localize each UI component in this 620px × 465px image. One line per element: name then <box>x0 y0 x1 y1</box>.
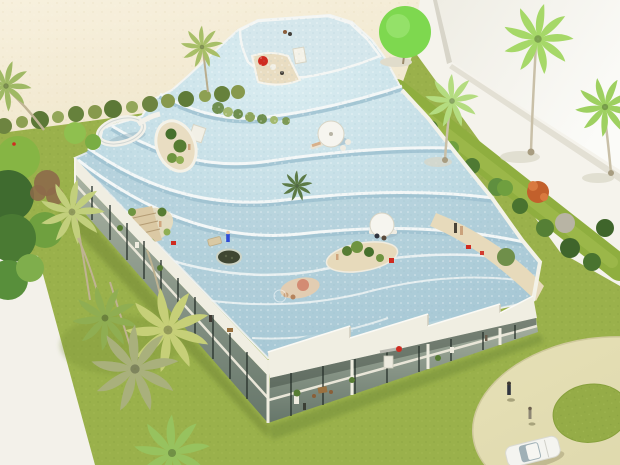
interior-figure <box>209 315 212 322</box>
terrace-tree <box>497 248 515 266</box>
rendered-scene <box>0 0 620 465</box>
red-chair <box>171 241 176 245</box>
round-pool <box>217 250 241 265</box>
orange-flower-bush <box>527 181 549 203</box>
red-flowers <box>396 346 402 352</box>
figure <box>159 221 162 227</box>
grey-bush <box>555 213 575 233</box>
red-flowers <box>12 142 16 146</box>
figure <box>460 226 463 235</box>
seated-figure <box>382 236 387 241</box>
standing-blue-figure <box>226 231 230 242</box>
interior-figure <box>303 403 306 410</box>
pedestrian <box>529 410 532 419</box>
swimmer <box>291 295 296 300</box>
figure <box>454 223 457 233</box>
red-chair <box>466 245 471 249</box>
seated-figure <box>375 234 380 239</box>
figure <box>336 254 339 260</box>
red-chair <box>389 258 394 263</box>
scene-canvas <box>0 0 620 465</box>
pedestrian <box>507 385 511 395</box>
red-chair <box>480 251 484 255</box>
interior-figure <box>485 335 488 341</box>
white-parasol <box>370 213 394 237</box>
courtyard-figure <box>188 144 191 150</box>
